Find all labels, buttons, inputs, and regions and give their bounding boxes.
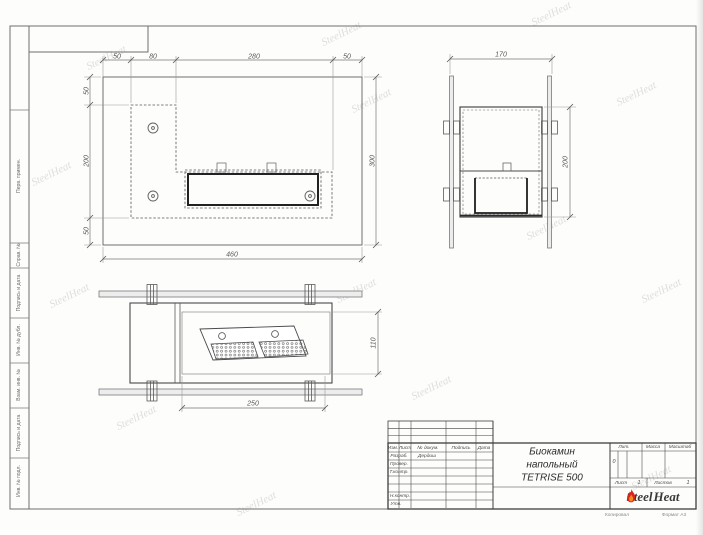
stamp-listov-value: 1 (686, 480, 689, 485)
margin-label-vzam-inv: Взам. инв. № (16, 369, 21, 401)
front-view (103, 77, 362, 245)
stamp-col-data: Дата (478, 445, 491, 450)
margin-label-podpis-data-2: Подпись и дата (16, 415, 21, 452)
stamp-row-tkontr: Т.контр. (389, 470, 408, 475)
dim-front-top-50b: 50 (343, 54, 351, 61)
stamp-lit-label: Лит. (618, 445, 629, 450)
footer-copied-label: Копировал (605, 513, 629, 518)
stamp-razrab-name: Дердиш (418, 454, 436, 459)
dim-front-left-50a: 50 (84, 87, 91, 95)
margin-label-inv-dubl: Инв. № дубл. (16, 324, 21, 356)
drawing-linework (0, 0, 703, 535)
stamp-row-nkontr: Н.контр. (390, 494, 410, 499)
stamp-row-utv: Утв. (391, 502, 402, 507)
margin-label-sprav-no: Справ. № (16, 243, 21, 266)
stamp-row-prover: Провер. (390, 462, 408, 467)
dim-plan-bottom-250: 250 (247, 401, 259, 408)
plan-view (99, 285, 362, 402)
title-line-2: напольный (521, 459, 583, 472)
dim-front-top-50a: 50 (113, 54, 121, 61)
steel-heat-logo: Steel Heat (627, 489, 680, 505)
stamp-col-podpis: Подпись (451, 445, 470, 450)
blueprint-page: SteelHeat SteelHeat SteelHeat SteelHeat … (0, 0, 703, 535)
stamp-col-dokum: № докум. (417, 445, 438, 450)
drawing-title: Биокамин напольный TETRISE 500 (521, 446, 583, 485)
dim-front-top-280: 280 (248, 54, 260, 61)
margin-label-podpis-data-1: Подпись и дата (16, 275, 21, 312)
dim-front-right-300: 300 (370, 155, 377, 167)
margin-label-perv-primen: Перв. примен. (16, 159, 21, 193)
side-view (444, 76, 558, 248)
dim-front-left-200: 200 (84, 155, 91, 167)
stamp-col-list: Лист (399, 445, 411, 450)
title-line-3: TETRISE 500 (521, 472, 583, 485)
stamp-list-value: 1 (637, 480, 640, 485)
stamp-lit-value: 0 (612, 459, 615, 464)
dim-front-left-50b: 50 (84, 227, 91, 235)
stamp-list-label: Лист (615, 480, 627, 485)
logo-text-heat: Heat (654, 489, 680, 505)
margin-label-inv-podl: Инв. № подл. (16, 465, 21, 497)
footer-format-label: Формат А3 (662, 513, 686, 518)
dim-plan-right-110: 110 (371, 337, 378, 348)
photo-edge-shadow (696, 0, 703, 535)
flame-icon (627, 489, 637, 503)
stamp-listov-label: Листов (654, 480, 671, 485)
title-line-1: Биокамин (521, 446, 583, 459)
dim-front-top-80: 80 (149, 54, 157, 61)
stamp-col-izm: Изм. (388, 445, 398, 450)
dim-side-top-170: 170 (495, 52, 507, 59)
dim-front-bottom-460: 460 (226, 252, 238, 259)
dim-side-right-200: 200 (563, 156, 570, 168)
stamp-massa-label: Масса (646, 445, 660, 450)
stamp-row-razrab: Разраб. (390, 454, 407, 459)
stamp-masshtab-label: Масштаб (669, 445, 691, 450)
